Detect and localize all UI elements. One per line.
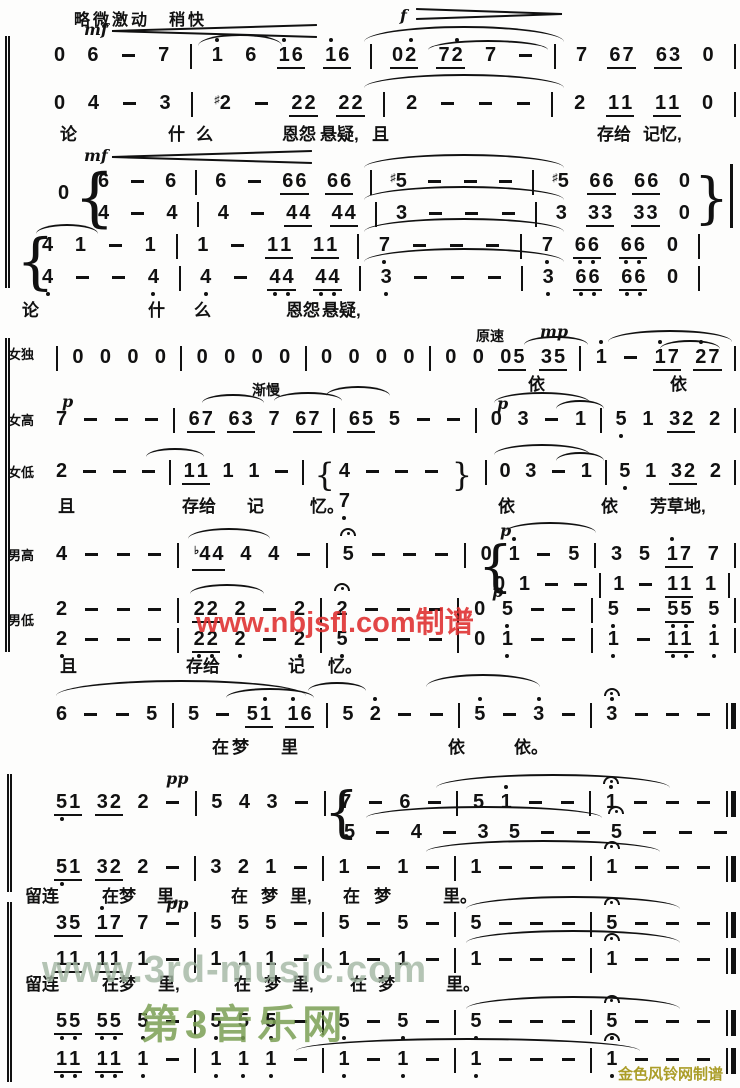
note-char: 4 <box>282 266 295 288</box>
note-group: ♯2 <box>212 92 233 118</box>
note-digit: 1 <box>265 1048 276 1070</box>
note-char: 6 <box>300 703 313 725</box>
note-token <box>496 1010 515 1024</box>
note-char: 0 <box>666 266 679 288</box>
duration-dash <box>85 608 98 611</box>
barline-thick <box>731 703 736 729</box>
note-char: 6 <box>214 170 227 192</box>
duration-dash <box>443 831 456 834</box>
duration-dash <box>85 553 98 556</box>
duration-dash <box>367 922 380 925</box>
note-char: 5 <box>109 1010 122 1032</box>
note-digit: 1 <box>509 543 520 565</box>
note-stack: 0 <box>700 44 715 67</box>
note-stack <box>400 543 419 557</box>
duration-dash <box>635 958 648 961</box>
note-token: ♯5 <box>388 170 409 196</box>
duration-dash <box>562 638 575 641</box>
note-char: 1 <box>144 234 157 256</box>
note-token <box>422 460 441 474</box>
barline <box>734 460 736 485</box>
note-char: 1 <box>595 346 608 368</box>
lyric-syllable: 存给 <box>182 492 216 517</box>
octave-dot-low <box>241 1074 245 1078</box>
note-digit: 3 <box>210 856 221 878</box>
note-char: 3 <box>605 703 618 725</box>
note-group: 5 <box>637 543 652 566</box>
note-digit: 2 <box>304 92 315 114</box>
note-digit: 1 <box>265 856 276 878</box>
note-token: 5 <box>236 912 251 935</box>
note-char: ♯5 <box>389 170 408 195</box>
music-line-voice2: 043♯222222211110 <box>52 92 736 118</box>
note-group <box>80 460 99 474</box>
note-char: 7 <box>339 791 352 813</box>
note-group: 1 <box>210 44 225 67</box>
note-char: 3 <box>159 92 172 114</box>
note-stack: 5 <box>395 912 410 935</box>
note-token: 44 <box>267 266 295 291</box>
note-char: 3 <box>395 202 408 224</box>
note-char: 6 <box>398 791 411 813</box>
note-group <box>228 234 247 248</box>
note-stack: 3 <box>531 703 546 726</box>
note-token <box>423 856 442 870</box>
barline <box>177 598 179 623</box>
barline <box>194 856 196 881</box>
duration-dash <box>531 638 544 641</box>
duration-dash <box>635 1020 648 1023</box>
note-digit: 6 <box>656 44 667 66</box>
barline <box>173 408 175 433</box>
note-token: 1 <box>604 948 619 971</box>
note-stack <box>423 1048 442 1062</box>
note-group: 0 <box>277 346 292 369</box>
note-token: 1 <box>246 460 261 483</box>
lyric-syllable: 梦 <box>232 733 249 758</box>
note-group: 0 <box>319 346 334 369</box>
note-token <box>364 912 383 926</box>
note-token: 2 <box>54 628 69 651</box>
note-char: 3 <box>632 202 645 224</box>
note-token <box>392 460 411 474</box>
note-token: 3 <box>609 543 624 566</box>
duration-dash <box>697 1058 710 1061</box>
note-digit: 5 <box>611 821 622 843</box>
note-token <box>634 628 653 642</box>
system-barline <box>7 774 12 892</box>
note-group: 0 <box>479 543 494 566</box>
duration-dash <box>537 553 550 556</box>
note-char: 2 <box>708 408 721 430</box>
duration-dash <box>488 276 501 279</box>
note-stack: 1 <box>643 460 658 483</box>
note-stack: 5 <box>387 408 402 431</box>
note-group <box>423 856 442 870</box>
note-digit: 2 <box>110 791 121 813</box>
note-group: 6 <box>243 44 258 67</box>
octave-dot-high <box>409 38 413 42</box>
barline <box>194 912 196 937</box>
slur-arc <box>364 74 564 88</box>
barline <box>326 703 328 728</box>
note-token <box>636 573 655 587</box>
note-stack <box>291 912 310 926</box>
note-group: 0 <box>98 346 113 369</box>
note-char: 0 <box>678 170 691 192</box>
note-stack: 1 <box>573 408 588 431</box>
note-stack: 44 <box>330 202 358 227</box>
note-stack <box>663 912 682 926</box>
note-digit: 1 <box>680 628 691 650</box>
note-token <box>114 628 133 642</box>
note-stack: 1 <box>517 573 532 596</box>
note-group <box>422 460 441 474</box>
barline-thin <box>726 1010 728 1036</box>
note-group <box>272 460 291 474</box>
note-group: 1 <box>263 856 278 879</box>
note-token: 1 <box>579 460 594 483</box>
note-digit: 5 <box>188 703 199 725</box>
duration-dash <box>465 212 478 215</box>
barline <box>551 92 553 117</box>
note-token <box>527 948 546 962</box>
beamed-note-group: 55 <box>95 1010 123 1035</box>
note-digit: 1 <box>470 856 481 878</box>
duration-dash <box>697 801 710 804</box>
beamed-note-group: 63 <box>654 44 682 69</box>
note-digit: 3 <box>606 703 617 725</box>
note-digit: 1 <box>708 628 719 650</box>
lyrics-row: 且存给记忆。依依芳草地, <box>0 492 740 514</box>
note-group <box>496 912 515 926</box>
note-digit: 0 <box>403 346 414 368</box>
note-token: 0 <box>677 202 692 225</box>
note-token <box>559 1048 578 1062</box>
note-token: 1 <box>499 791 514 814</box>
note-digit: 6 <box>165 170 176 192</box>
beamed-note-group: 11 <box>665 573 693 598</box>
slur-arc <box>146 448 204 457</box>
music-line-lower-line-2b: 513223211111 <box>54 856 736 882</box>
note-group: 4 <box>40 266 55 289</box>
octave-dot-high <box>478 697 482 701</box>
note-char: 6 <box>633 266 646 288</box>
note-token: 0 <box>700 44 715 67</box>
note-stack: 1 <box>706 628 721 651</box>
duration-dash <box>294 922 307 925</box>
note-token <box>369 543 388 557</box>
note-digit: 5 <box>338 912 349 934</box>
note-stack: 7 <box>706 543 721 566</box>
note-token <box>423 1010 442 1024</box>
duration-dash <box>366 470 379 473</box>
note-token <box>496 1048 515 1062</box>
note-digit: 7 <box>56 408 67 430</box>
note-group <box>694 703 713 717</box>
note-group: 1 <box>246 460 261 483</box>
note-group: 0 <box>346 346 361 369</box>
note-char: 3 <box>646 202 659 224</box>
note-group: 1 <box>606 628 621 651</box>
note-digit: 5 <box>396 170 407 192</box>
note-stack: 6 <box>163 170 178 193</box>
beamed-note-group: 67 <box>293 408 321 433</box>
duration-dash <box>113 470 126 473</box>
note-digit: 4 <box>332 202 343 224</box>
note-stack: 5 <box>263 912 278 935</box>
note-stack: 0 <box>677 202 692 225</box>
note-char: 0 <box>53 44 66 66</box>
note-digit: 1 <box>69 856 80 878</box>
note-group <box>145 598 164 612</box>
note-stack: 22 <box>289 92 317 117</box>
note-char: 1 <box>337 1048 350 1070</box>
lyric-syllable: 且 <box>372 120 389 145</box>
note-group <box>485 266 504 280</box>
note-char: 1 <box>68 1048 81 1070</box>
note-char: 7 <box>307 408 320 430</box>
octave-dot-high <box>609 785 613 789</box>
note-token <box>163 791 182 805</box>
brace: } <box>694 168 729 228</box>
note-token: 3 <box>208 856 223 879</box>
note-group <box>496 948 515 962</box>
note-token <box>496 912 515 926</box>
note-token: 2 <box>236 856 251 879</box>
note-token: 5 <box>614 408 629 431</box>
note-char: 5 <box>68 912 81 934</box>
note-token: 3 <box>394 202 409 225</box>
note-token: 66 <box>573 234 601 259</box>
note-char: 5 <box>396 1010 409 1032</box>
note-char: 6 <box>620 266 633 288</box>
note-char: 0 <box>493 573 506 595</box>
note-stack: 1 <box>604 1048 619 1071</box>
note-char: 3 <box>600 202 613 224</box>
note-stack: 32 <box>95 791 123 816</box>
note-char: 7 <box>437 44 450 66</box>
note-token <box>538 821 557 835</box>
note-token: 1 <box>517 573 532 596</box>
note-char: 0 <box>499 346 512 368</box>
note-stack <box>145 598 164 612</box>
note-stack: 0 <box>52 44 67 67</box>
note-stack <box>476 92 495 106</box>
note-stack: 5 <box>507 821 522 844</box>
note-char: 1 <box>469 856 482 878</box>
duration-dash <box>635 1058 648 1061</box>
note-group: 7 <box>540 234 555 257</box>
duration-dash <box>530 1020 543 1023</box>
note-group: 6 <box>397 791 412 814</box>
note-group <box>527 856 546 870</box>
note-token: 1 <box>706 628 721 651</box>
duration-dash <box>251 212 264 215</box>
note-digit: 0 <box>481 543 492 565</box>
note-token: 5 <box>336 912 351 935</box>
duration-dash <box>502 212 515 215</box>
note-group: 5 <box>209 791 224 814</box>
note-digit: 4 <box>328 266 339 288</box>
note-digit: 6 <box>634 234 645 256</box>
note-stack: 3 <box>379 266 394 289</box>
note-stack: 5 <box>606 598 621 621</box>
note-stack: 5 <box>471 791 486 814</box>
note-char: 1 <box>136 1048 149 1070</box>
note-digit: 0 <box>500 346 511 368</box>
note-stack <box>632 912 651 926</box>
note-group: 3 <box>516 408 531 431</box>
note-group <box>694 1048 713 1062</box>
note-char: 6 <box>97 170 110 192</box>
note-token: 67 <box>607 44 635 69</box>
note-stack: 1 <box>703 573 718 596</box>
note-stack: 3 <box>604 703 619 726</box>
note-digit: 5 <box>343 543 354 565</box>
note-digit: 5 <box>69 1010 80 1032</box>
note-stack: 72 <box>436 44 464 69</box>
note-token <box>483 234 502 248</box>
note-stack <box>527 856 546 870</box>
note-digit: 4 <box>269 266 280 288</box>
note-char: 0 <box>402 346 415 368</box>
note-char: 1 <box>574 408 587 430</box>
note-group: 3 <box>379 266 394 289</box>
beamed-note-group: 44 <box>313 266 341 291</box>
note-token <box>427 703 446 717</box>
lyric-syllable: 在梦 <box>102 882 136 907</box>
note-digit: 6 <box>349 408 360 430</box>
note-token <box>73 266 92 280</box>
note-token <box>426 202 445 216</box>
note-group <box>163 856 182 870</box>
note-digit: 0 <box>445 346 456 368</box>
note-digit: 5 <box>389 408 400 430</box>
music-line-final-line-4: 111111111111 <box>54 1048 736 1074</box>
note-digit: 5 <box>502 598 513 620</box>
note-stack <box>80 460 99 474</box>
note-token: 7 <box>706 543 721 566</box>
note-stack <box>542 573 561 587</box>
note-group <box>395 703 414 717</box>
note-token: 1 <box>395 1048 410 1071</box>
barline <box>179 266 181 291</box>
note-token: 63 <box>227 408 255 433</box>
note-digit: 2 <box>56 460 67 482</box>
note-token: 0 <box>700 92 715 115</box>
note-token <box>272 460 291 474</box>
note-token: 1 <box>263 856 278 879</box>
note-digit: 6 <box>189 408 200 430</box>
note-stack: 4 <box>86 92 101 115</box>
note-token <box>549 460 568 474</box>
note-token: 0 <box>52 44 67 67</box>
note-digit: 3 <box>543 266 554 288</box>
duration-dash <box>131 180 144 183</box>
note-stack: 33 <box>586 202 614 227</box>
note-char: 1 <box>605 1048 618 1070</box>
note-char: 5 <box>605 1010 618 1032</box>
note-token: 27 <box>693 346 721 371</box>
note-token: 3 <box>531 703 546 726</box>
note-token <box>694 1010 713 1024</box>
note-group: 5 <box>236 912 251 935</box>
note-stack <box>422 460 441 474</box>
note-digit: 1 <box>680 573 691 595</box>
beamed-note-group: 55 <box>54 1010 82 1035</box>
note-stack: 0 <box>497 460 512 483</box>
note-char: 0 <box>53 92 66 114</box>
note-digit: 3 <box>518 408 529 430</box>
note-digit: 1 <box>667 628 678 650</box>
barline <box>734 92 736 117</box>
note-token <box>364 1010 383 1024</box>
note-stack: 1 <box>395 856 410 879</box>
note-digit: 1 <box>519 573 530 595</box>
note-char: 2 <box>369 703 382 725</box>
note-token <box>213 703 232 717</box>
note-stack: 6 <box>85 44 100 67</box>
duration-dash <box>367 1020 380 1023</box>
note-char: 2 <box>404 44 417 66</box>
note-char: 7 <box>157 44 170 66</box>
note-stack: 1 <box>611 573 626 596</box>
note-token <box>252 92 271 106</box>
barline <box>56 346 58 371</box>
note-token <box>82 598 101 612</box>
note-token: 1 <box>73 234 88 257</box>
duration-dash <box>562 1058 575 1061</box>
note-token: 0 <box>98 346 113 369</box>
note-stack: 65 <box>347 408 375 433</box>
note-digit: 5 <box>470 1010 481 1032</box>
note-digit: 5 <box>238 912 249 934</box>
beamed-note-group: 67 <box>607 44 635 69</box>
note-group <box>559 1048 578 1062</box>
note-stack: 66 <box>587 170 615 195</box>
note-token <box>632 948 651 962</box>
note-token <box>574 821 593 835</box>
note-stack: ♭44 <box>192 543 225 571</box>
note-stack <box>426 202 445 216</box>
note-stack <box>559 1010 578 1024</box>
duration-dash <box>624 356 637 359</box>
duration-dash <box>562 713 575 716</box>
beamed-note-group: 51 <box>245 703 273 728</box>
music-line-chorus-lower-a: 44444443333330 <box>96 202 692 227</box>
note-group <box>448 266 467 280</box>
note-stack <box>423 856 442 870</box>
note-stack: 0 <box>472 598 487 621</box>
note-char: 7 <box>378 234 391 256</box>
octave-dot-high <box>599 340 603 344</box>
note-token: 1 <box>611 573 626 596</box>
note-char: 3 <box>668 44 681 66</box>
note-stack: 2 <box>236 856 251 879</box>
note-stack: 0 <box>70 346 85 369</box>
note-char: 7 <box>109 912 122 934</box>
note-digit: 0 <box>321 346 332 368</box>
note-group: 1 <box>395 856 410 879</box>
octave-dot-high <box>610 697 614 701</box>
slur-arc <box>436 774 670 788</box>
note-token <box>632 1048 651 1062</box>
note-token: 1 <box>500 628 515 651</box>
note-digit: 0 <box>348 346 359 368</box>
note-digit: 0 <box>702 44 713 66</box>
note-group: 0 <box>471 346 486 369</box>
